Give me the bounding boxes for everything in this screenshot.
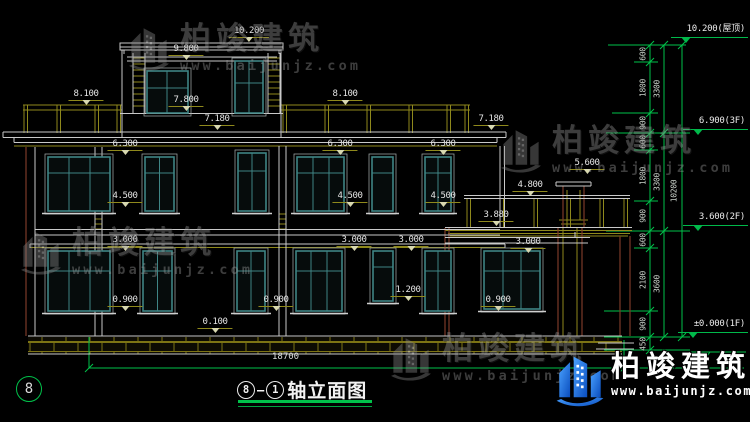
axis-circle-start: 8 [237,381,255,399]
elevation-mark: 9.800 [168,45,203,56]
level-marker-1f: ±0.000(1F) [678,320,748,333]
dim-storey: 3300 [653,173,662,191]
logo-url: www.baijunjz.com [611,384,750,398]
overall-width-dim: 18700 [272,352,299,362]
dim-storey: 3600 [653,275,662,293]
elevation-mark: 0.900 [258,296,293,307]
elevation-mark: 7.180 [473,115,508,126]
elevation-mark: 4.500 [425,192,460,203]
elevation-mark: 0.900 [107,296,142,307]
elevation-mark: 3.000 [393,236,428,247]
windows [42,58,546,314]
title-underline-thin [238,406,372,407]
elevation-mark: 0.100 [197,318,232,329]
title-text: 轴立面图 [287,376,367,403]
axis-circle-end: 1 [266,381,284,399]
company-logo: 柏竣建筑 www.baijunjz.com [553,350,750,412]
title-underline-thick [238,400,372,403]
axis-number: 8 [25,381,33,397]
brick-plinth [28,337,622,354]
elevation-mark: 6.300 [107,140,142,151]
level-marker-3f: 6.900(3F) [683,117,748,130]
title-dash: — [257,383,264,397]
logo-building-icon [553,350,607,412]
elevation-mark: 1.200 [390,286,425,297]
dim-segment: 1800 [639,79,648,97]
elevation-mark: 4.500 [107,192,142,203]
elevation-mark: 0.900 [480,296,515,307]
drawing-title: 8 — 1 轴立面图 [237,376,367,403]
cad-elevation-canvas: 10.200 9.800 8.100 8.100 7.800 7.180 7.1… [0,0,750,422]
elevation-mark: 5.600 [569,159,604,170]
elevation-mark: 10.200 [229,27,269,38]
elevation-mark: 3.000 [336,236,371,247]
dim-segment: 600 [639,47,648,61]
logo-brand: 柏竣建筑 [611,349,750,383]
elevation-mark: 7.800 [168,96,203,107]
level-marker-roof: 10.200(屋顶) [671,25,748,38]
elevation-mark: 8.100 [68,90,103,101]
elevation-mark: 3.880 [478,211,513,222]
dim-segment: 900 [639,209,648,223]
dim-segment: 2100 [639,271,648,289]
dim-segment: 1800 [639,167,648,185]
dim-total: 10200 [670,180,679,203]
dim-segment: 600 [639,233,648,247]
level-marker-2f: 3.600(2F) [683,213,748,226]
dim-storey: 3300 [653,80,662,98]
elevation-mark: 3.000 [510,238,545,249]
elevation-mark: 4.500 [332,192,367,203]
elevation-mark: 4.800 [512,181,547,192]
elevation-mark: 8.100 [327,90,362,101]
dim-segment: 900 [639,116,648,130]
dim-segment: 900 [639,317,648,331]
dim-segment: 600 [639,135,648,149]
elevation-mark: 6.300 [322,140,357,151]
elevation-mark: 6.300 [425,140,460,151]
elevation-mark: 7.180 [199,115,234,126]
axis-bubble-8: 8 [16,376,42,402]
elevation-mark: 3.000 [107,236,142,247]
